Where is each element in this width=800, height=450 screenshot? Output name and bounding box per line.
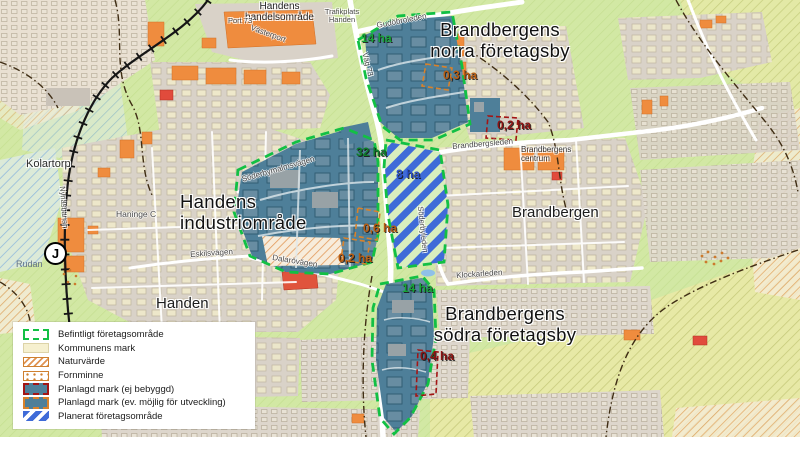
title-handens-industriomrade: Handens industriområde [180, 192, 307, 233]
size-sodra-14ha: 14 ha [402, 282, 433, 295]
legend-row: Planlagd mark (ev. möjlig för utveckling… [23, 396, 255, 410]
legend-swatch-existing-area-outline [23, 329, 49, 340]
legend-label: Befintligt företagsområde [58, 329, 164, 340]
label-handen: Handen [156, 296, 209, 313]
legend-row: Naturvärde [23, 355, 255, 369]
legend-swatch-ancient-monument [23, 371, 49, 381]
label-kolartorp: Kolartorp [26, 158, 71, 170]
commuter-rail-station-icon: J [44, 242, 67, 265]
legend-swatch-planned-business-area [23, 411, 49, 421]
label-nynasbanan: Nynäsbanan [58, 186, 69, 229]
legend-swatch-nature-value [23, 357, 49, 367]
legend-row: Befintligt företagsområde [23, 328, 255, 342]
size-industri-32ha: 32 ha [356, 146, 387, 159]
size-industri-02ha: 0,2 ha [338, 252, 372, 265]
legend-label: Planlagd mark (ej bebyggd) [58, 384, 174, 395]
legend-label: Planerat företagsområde [58, 411, 163, 422]
label-haninge-c: Haninge C [116, 210, 156, 220]
map-screenshot: Kolartorp Handens handelsområde Trafikpl… [0, 0, 800, 450]
legend-row: Fornminne [23, 369, 255, 383]
label-trafikplats-handen: Trafikplats Handen [320, 8, 364, 25]
size-industri-06ha: 0,6 ha [363, 222, 397, 235]
legend-label: Fornminne [58, 370, 103, 381]
title-brandbergens-norra: Brandbergens norra företagsby [410, 20, 590, 61]
legend-swatch-municipal-land [23, 343, 49, 353]
legend-row: Planlagd mark (ej bebyggd) [23, 382, 255, 396]
label-port-73: Port 73 [228, 17, 252, 25]
size-norra-14ha: 14 ha [361, 32, 392, 45]
legend-label: Kommunens mark [58, 343, 135, 354]
legend-label: Planlagd mark (ev. möjlig för utveckling… [58, 397, 226, 408]
legend-row: Planerat företagsområde [23, 410, 255, 424]
legend-swatch-planned-developable [23, 397, 49, 409]
legend-label: Naturvärde [58, 356, 105, 367]
legend-row: Kommunens mark [23, 342, 255, 356]
label-rudan: Rudan [16, 259, 43, 269]
legend: Befintligt företagsområde Kommunens mark… [13, 322, 255, 429]
size-norra-02ha: 0,2 ha [497, 119, 531, 132]
title-brandbergens-sodra: Brandbergens södra företagsby [420, 304, 590, 345]
map-canvas: Kolartorp Handens handelsområde Trafikpl… [0, 0, 800, 437]
label-brandbergen: Brandbergen [512, 205, 599, 222]
legend-swatch-planned-undeveloped [23, 383, 49, 395]
size-planned-8ha: 8 ha [396, 168, 420, 181]
size-norra-03ha: 0,3 ha [443, 69, 477, 82]
label-brandbergens-centrum: Brandbergens centrum [521, 146, 571, 164]
size-sodra-04ha: 0,4 ha [420, 350, 454, 363]
